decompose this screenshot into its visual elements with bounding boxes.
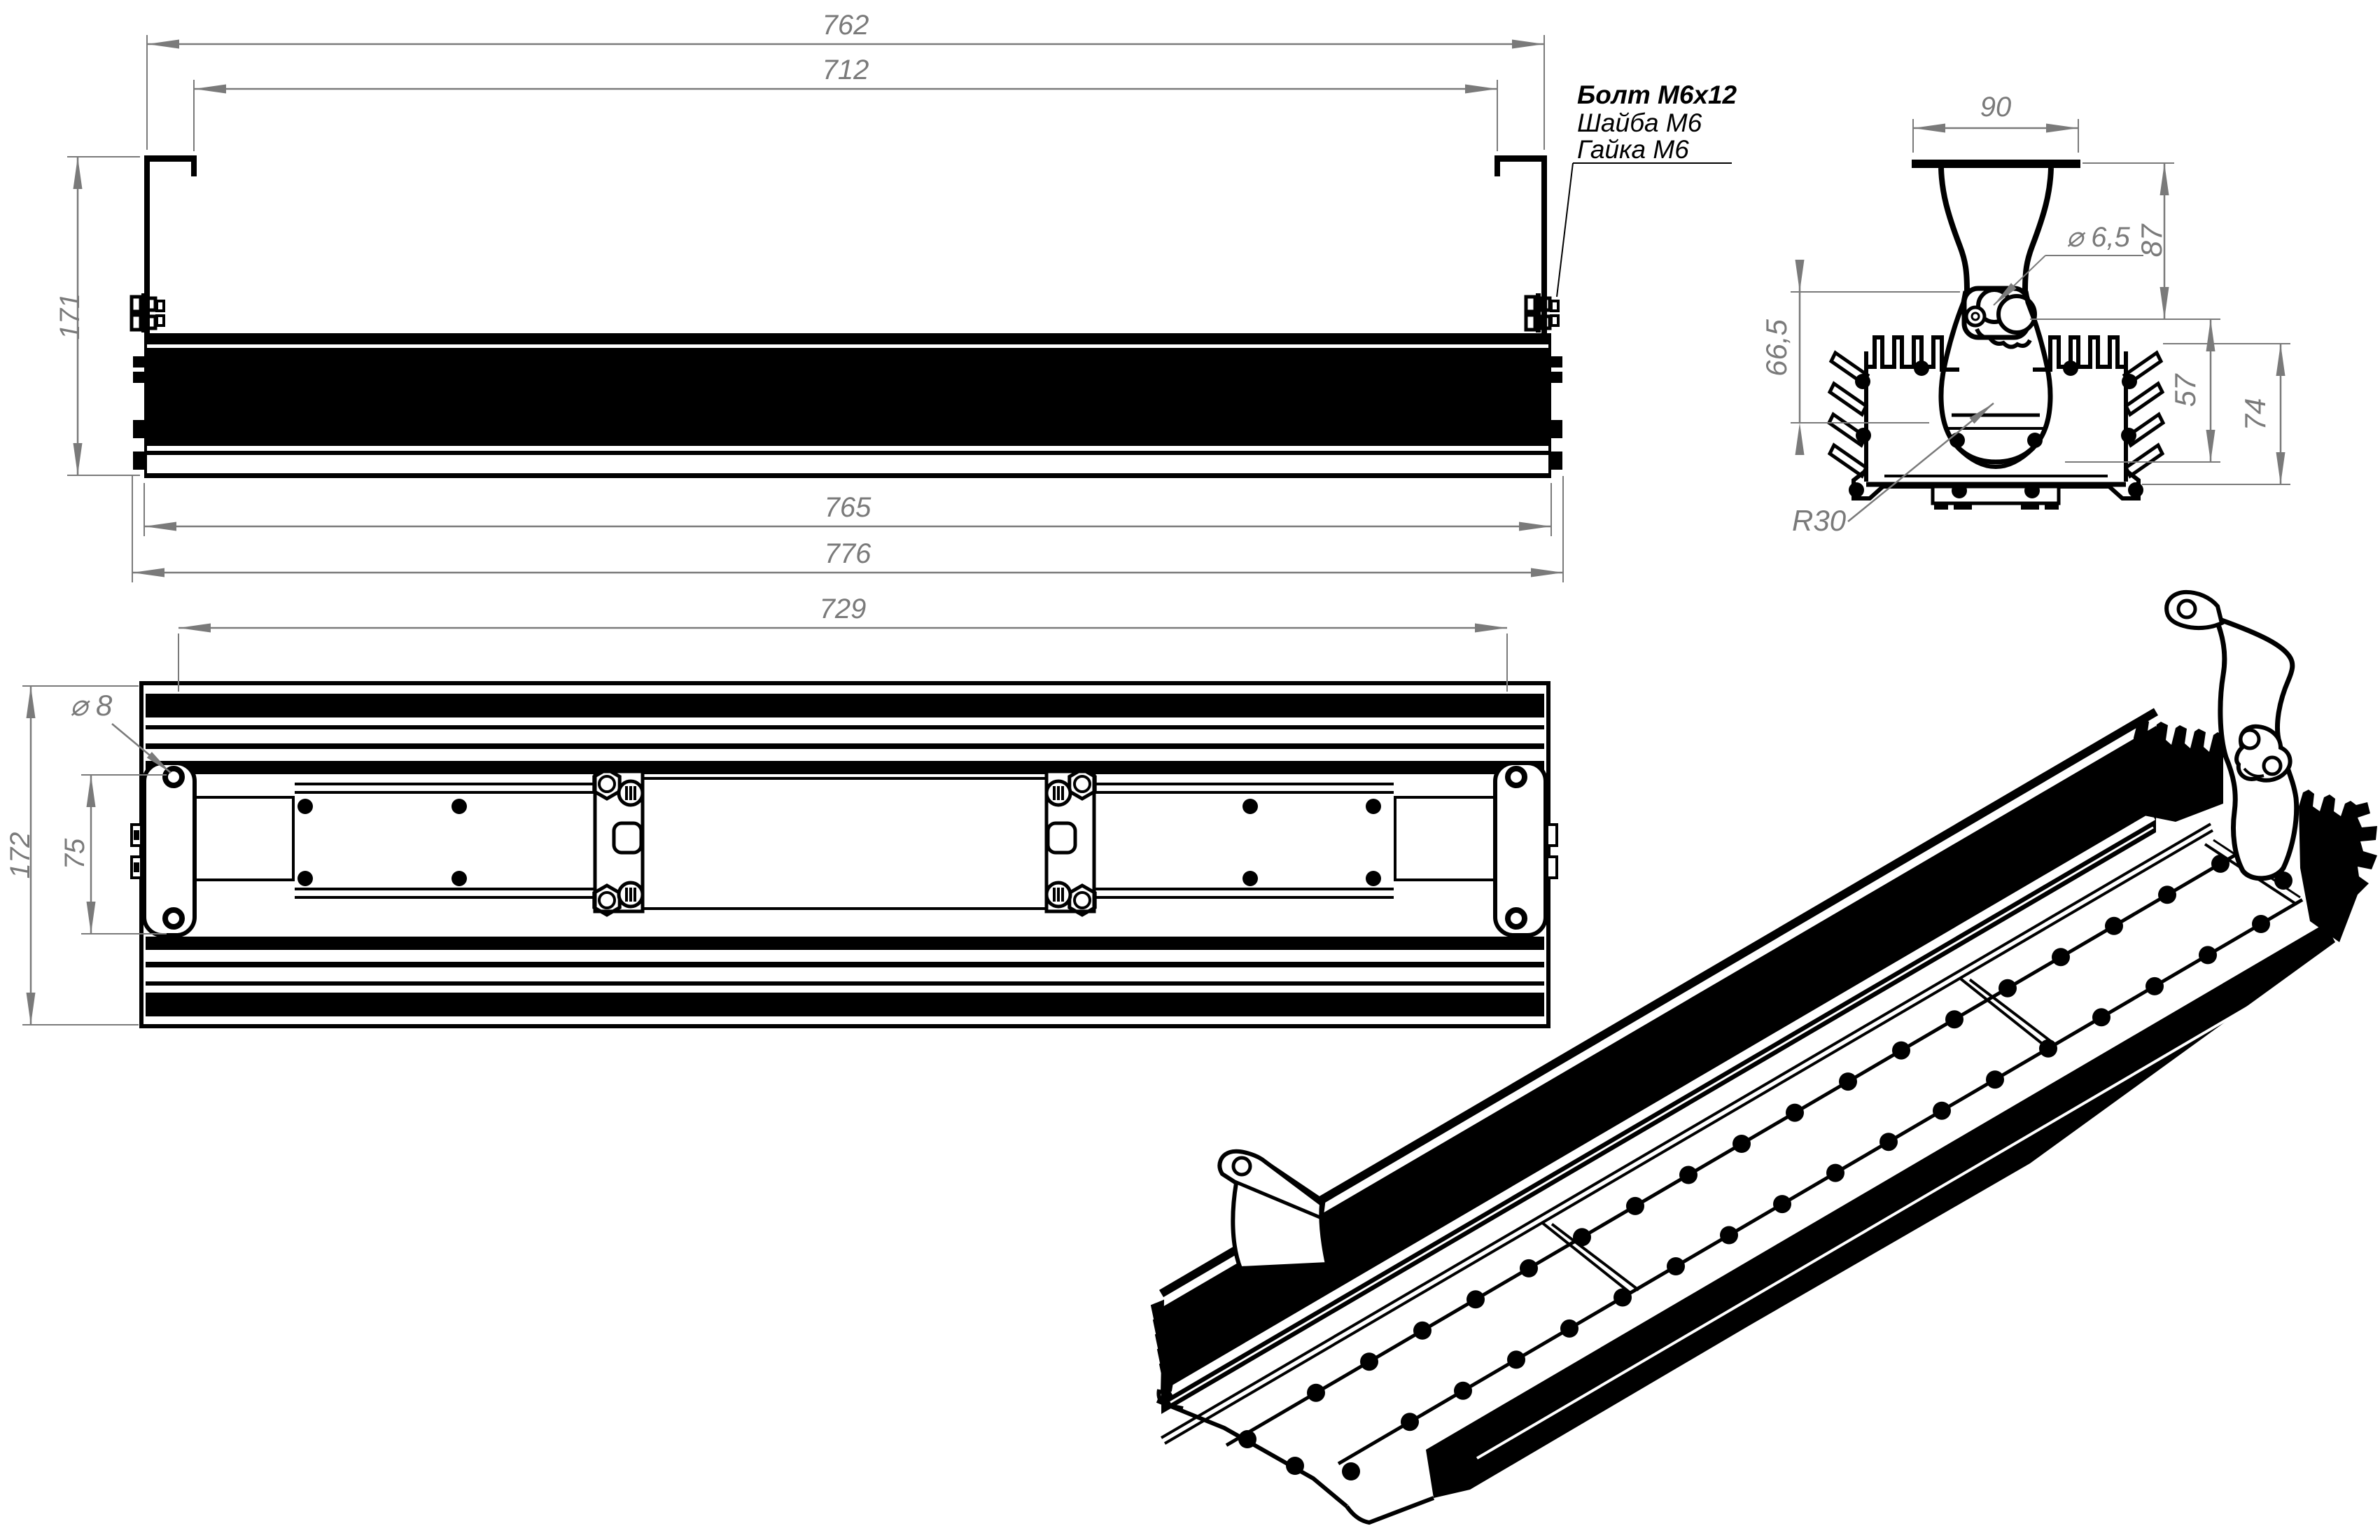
svg-text:762: 762 [822,10,869,41]
svg-text:57: 57 [2169,373,2201,407]
svg-text:776: 776 [825,538,871,569]
svg-text:66,5: 66,5 [1760,318,1793,376]
svg-text:712: 712 [822,55,869,85]
svg-text:729: 729 [820,594,867,624]
svg-text:R30: R30 [1792,504,1847,537]
svg-text:765: 765 [825,492,871,523]
svg-text:74: 74 [2239,398,2271,431]
svg-text:75: 75 [59,838,90,869]
svg-text:⌀ 6,5: ⌀ 6,5 [2066,222,2131,253]
svg-text:90: 90 [1980,92,2012,122]
svg-text:87: 87 [2135,223,2168,257]
svg-text:⌀ 8: ⌀ 8 [70,689,113,722]
svg-text:172: 172 [5,832,36,879]
svg-text:Шайба М6: Шайба М6 [1577,108,1702,137]
svg-text:Гайка М6: Гайка М6 [1577,135,1689,164]
svg-text:171: 171 [55,293,85,340]
svg-text:Болт М6х12: Болт М6х12 [1577,80,1737,109]
